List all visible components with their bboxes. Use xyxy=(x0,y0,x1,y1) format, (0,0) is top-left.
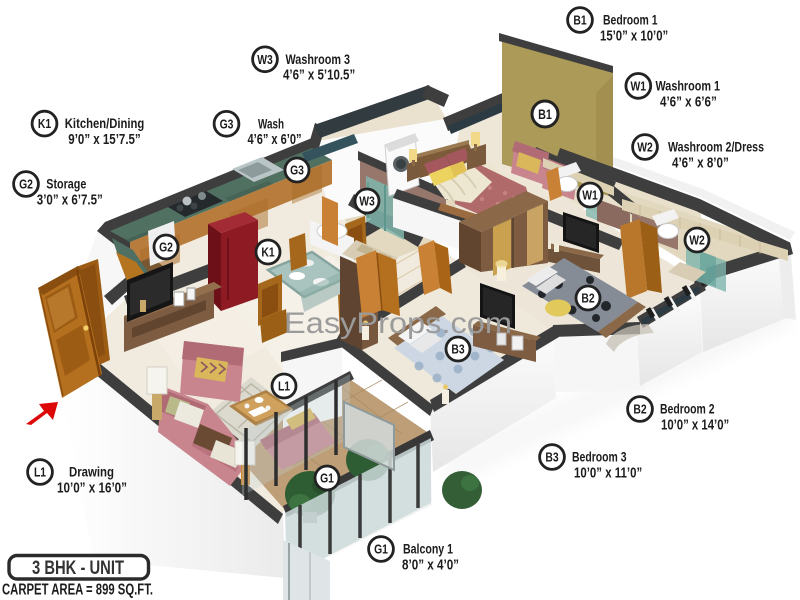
svg-text:4’6” x 6’0”: 4’6” x 6’0” xyxy=(248,131,302,148)
svg-text:10’0” x 16’0”: 10’0” x 16’0” xyxy=(57,479,127,496)
svg-text:9’0” x 15’7.5”: 9’0” x 15’7.5” xyxy=(68,131,140,148)
svg-text:Bedroom 3: Bedroom 3 xyxy=(572,450,627,465)
svg-text:B1: B1 xyxy=(538,107,552,122)
svg-text:Washroom 2/Dress: Washroom 2/Dress xyxy=(668,140,764,155)
svg-text:4’6” x 6’6”: 4’6” x 6’6” xyxy=(660,93,717,110)
svg-text:L1: L1 xyxy=(34,466,47,480)
svg-text:15’0” x 10’0”: 15’0” x 10’0” xyxy=(600,27,668,44)
svg-text:W2: W2 xyxy=(689,234,705,248)
svg-text:K1: K1 xyxy=(38,117,52,131)
svg-text:W3: W3 xyxy=(257,53,273,67)
svg-text:W1: W1 xyxy=(582,189,598,203)
svg-text:W1: W1 xyxy=(631,79,647,93)
svg-text:L1: L1 xyxy=(278,380,291,394)
svg-text:Drawing: Drawing xyxy=(69,465,114,480)
svg-text:4’6” x 8’0”: 4’6” x 8’0” xyxy=(672,154,729,171)
svg-text:G1: G1 xyxy=(374,543,388,557)
svg-text:Balcony 1: Balcony 1 xyxy=(403,542,453,557)
svg-text:G3: G3 xyxy=(220,117,234,131)
svg-text:CARPET AREA = 899 SQ.FT.: CARPET AREA = 899 SQ.FT. xyxy=(2,582,153,599)
svg-text:10’0” x 14’0”: 10’0” x 14’0” xyxy=(661,416,729,433)
svg-text:B2: B2 xyxy=(633,403,647,417)
svg-text:B3: B3 xyxy=(451,343,465,357)
svg-text:G1: G1 xyxy=(320,472,334,486)
svg-text:K1: K1 xyxy=(261,246,275,260)
svg-text:W3: W3 xyxy=(359,195,375,209)
svg-text:10’0” x 11’0”: 10’0” x 11’0” xyxy=(574,464,642,481)
svg-text:G3: G3 xyxy=(290,164,304,178)
svg-text:Bedroom 2: Bedroom 2 xyxy=(660,402,715,417)
svg-text:Bedroom 1: Bedroom 1 xyxy=(603,13,658,28)
svg-text:W2: W2 xyxy=(637,141,653,155)
svg-text:Storage: Storage xyxy=(46,177,86,192)
svg-text:8’0” x 4’0”: 8’0” x 4’0” xyxy=(402,556,459,573)
svg-text:Wash: Wash xyxy=(258,116,284,131)
svg-text:G2: G2 xyxy=(159,241,173,255)
svg-text:3 BHK - UNIT: 3 BHK - UNIT xyxy=(32,558,124,579)
svg-text:Kitchen/Dining: Kitchen/Dining xyxy=(65,116,145,131)
svg-text:3’0” x 6’7.5”: 3’0” x 6’7.5” xyxy=(37,191,103,208)
svg-text:EasyProps.com: EasyProps.com xyxy=(284,307,512,340)
svg-text:Washroom 1: Washroom 1 xyxy=(656,79,721,94)
svg-text:B1: B1 xyxy=(573,14,587,28)
svg-text:B3: B3 xyxy=(545,451,559,465)
svg-text:4’6” x 5’10.5”: 4’6” x 5’10.5” xyxy=(283,67,355,84)
svg-text:G2: G2 xyxy=(19,178,33,192)
svg-text:B2: B2 xyxy=(581,292,595,306)
svg-text:Washroom 3: Washroom 3 xyxy=(286,52,351,67)
